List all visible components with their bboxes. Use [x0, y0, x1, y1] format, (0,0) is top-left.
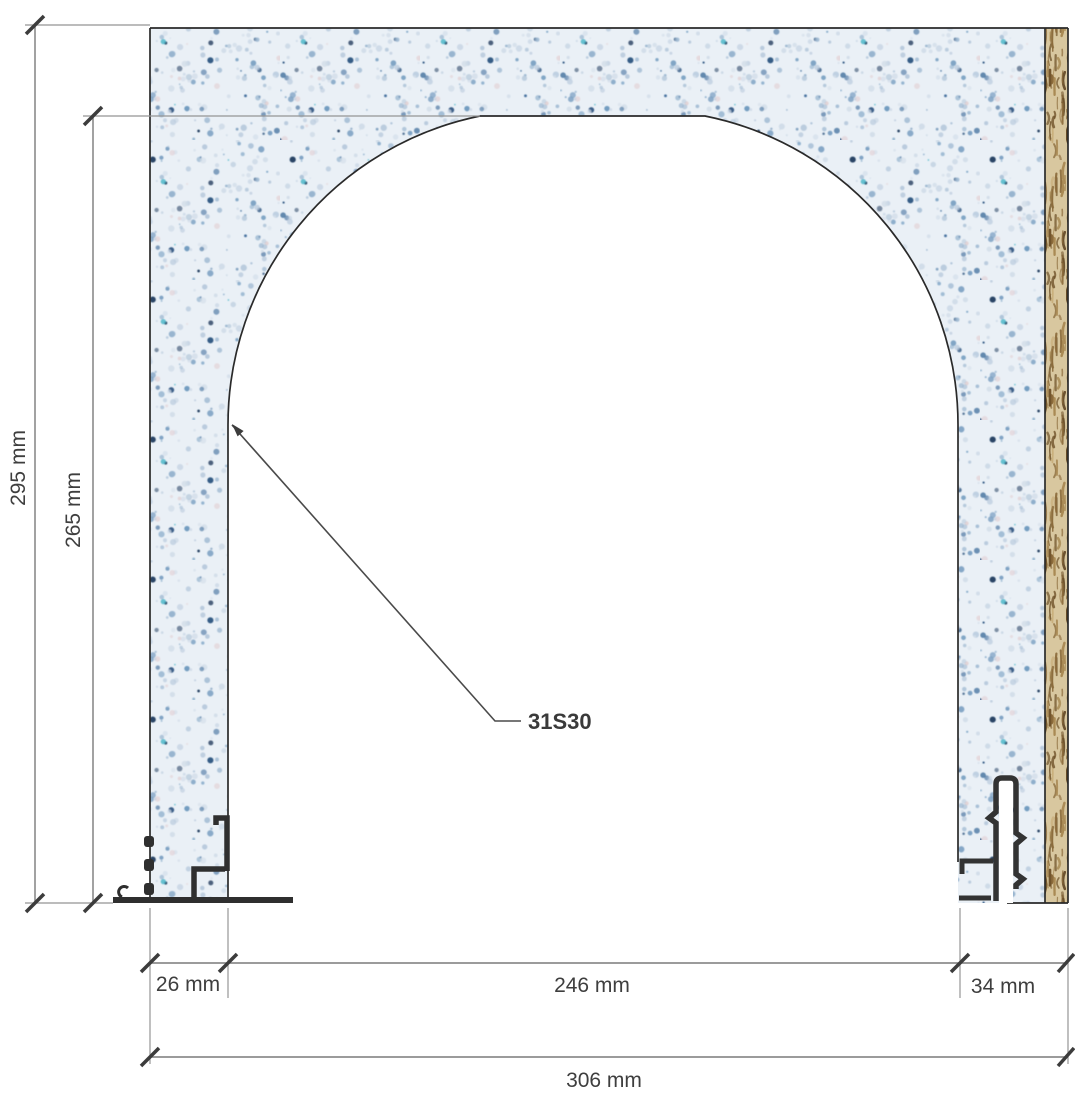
dimension-label-right-jamb: 34 mm — [971, 975, 1035, 998]
arch-opening-outline — [228, 116, 958, 899]
dimension-label-opening-width: 246 mm — [554, 974, 630, 997]
dimension-label-total-width: 306 mm — [566, 1069, 642, 1092]
drawing-canvas: 295 mm 265 mm 26 mm 246 mm 34 mm 306 mm … — [0, 0, 1075, 1099]
dimension-label-opening-height: 265 mm — [62, 472, 85, 548]
leader-arrowhead — [232, 424, 244, 436]
leader-line — [232, 424, 521, 721]
panel-section — [150, 28, 1045, 903]
component-label: 31S30 — [528, 709, 592, 734]
dimension-label-left-jamb: 26 mm — [156, 973, 220, 996]
dimension-label-total-height: 295 mm — [7, 430, 30, 506]
technical-drawing: 295 mm 265 mm 26 mm 246 mm 34 mm 306 mm … — [0, 0, 1075, 1099]
edge-strip — [1045, 28, 1068, 903]
